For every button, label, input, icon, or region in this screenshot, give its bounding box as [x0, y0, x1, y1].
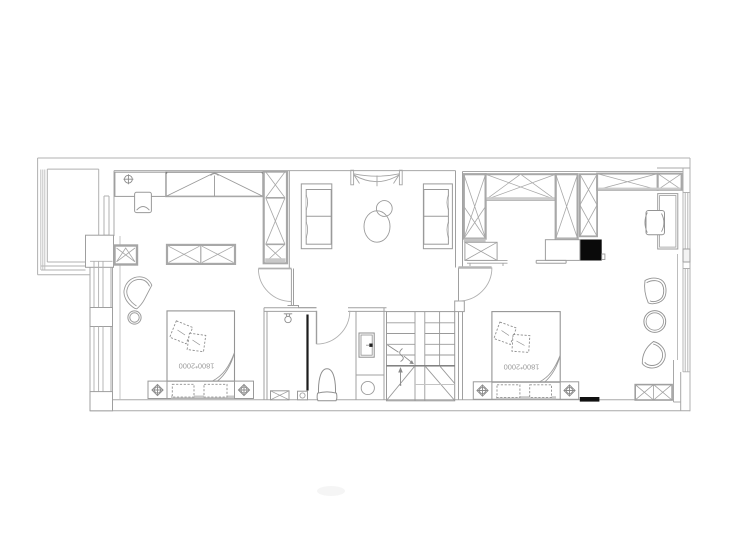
svg-text:1800*2000: 1800*2000 — [504, 363, 540, 372]
svg-text:1800*2000: 1800*2000 — [179, 362, 215, 371]
